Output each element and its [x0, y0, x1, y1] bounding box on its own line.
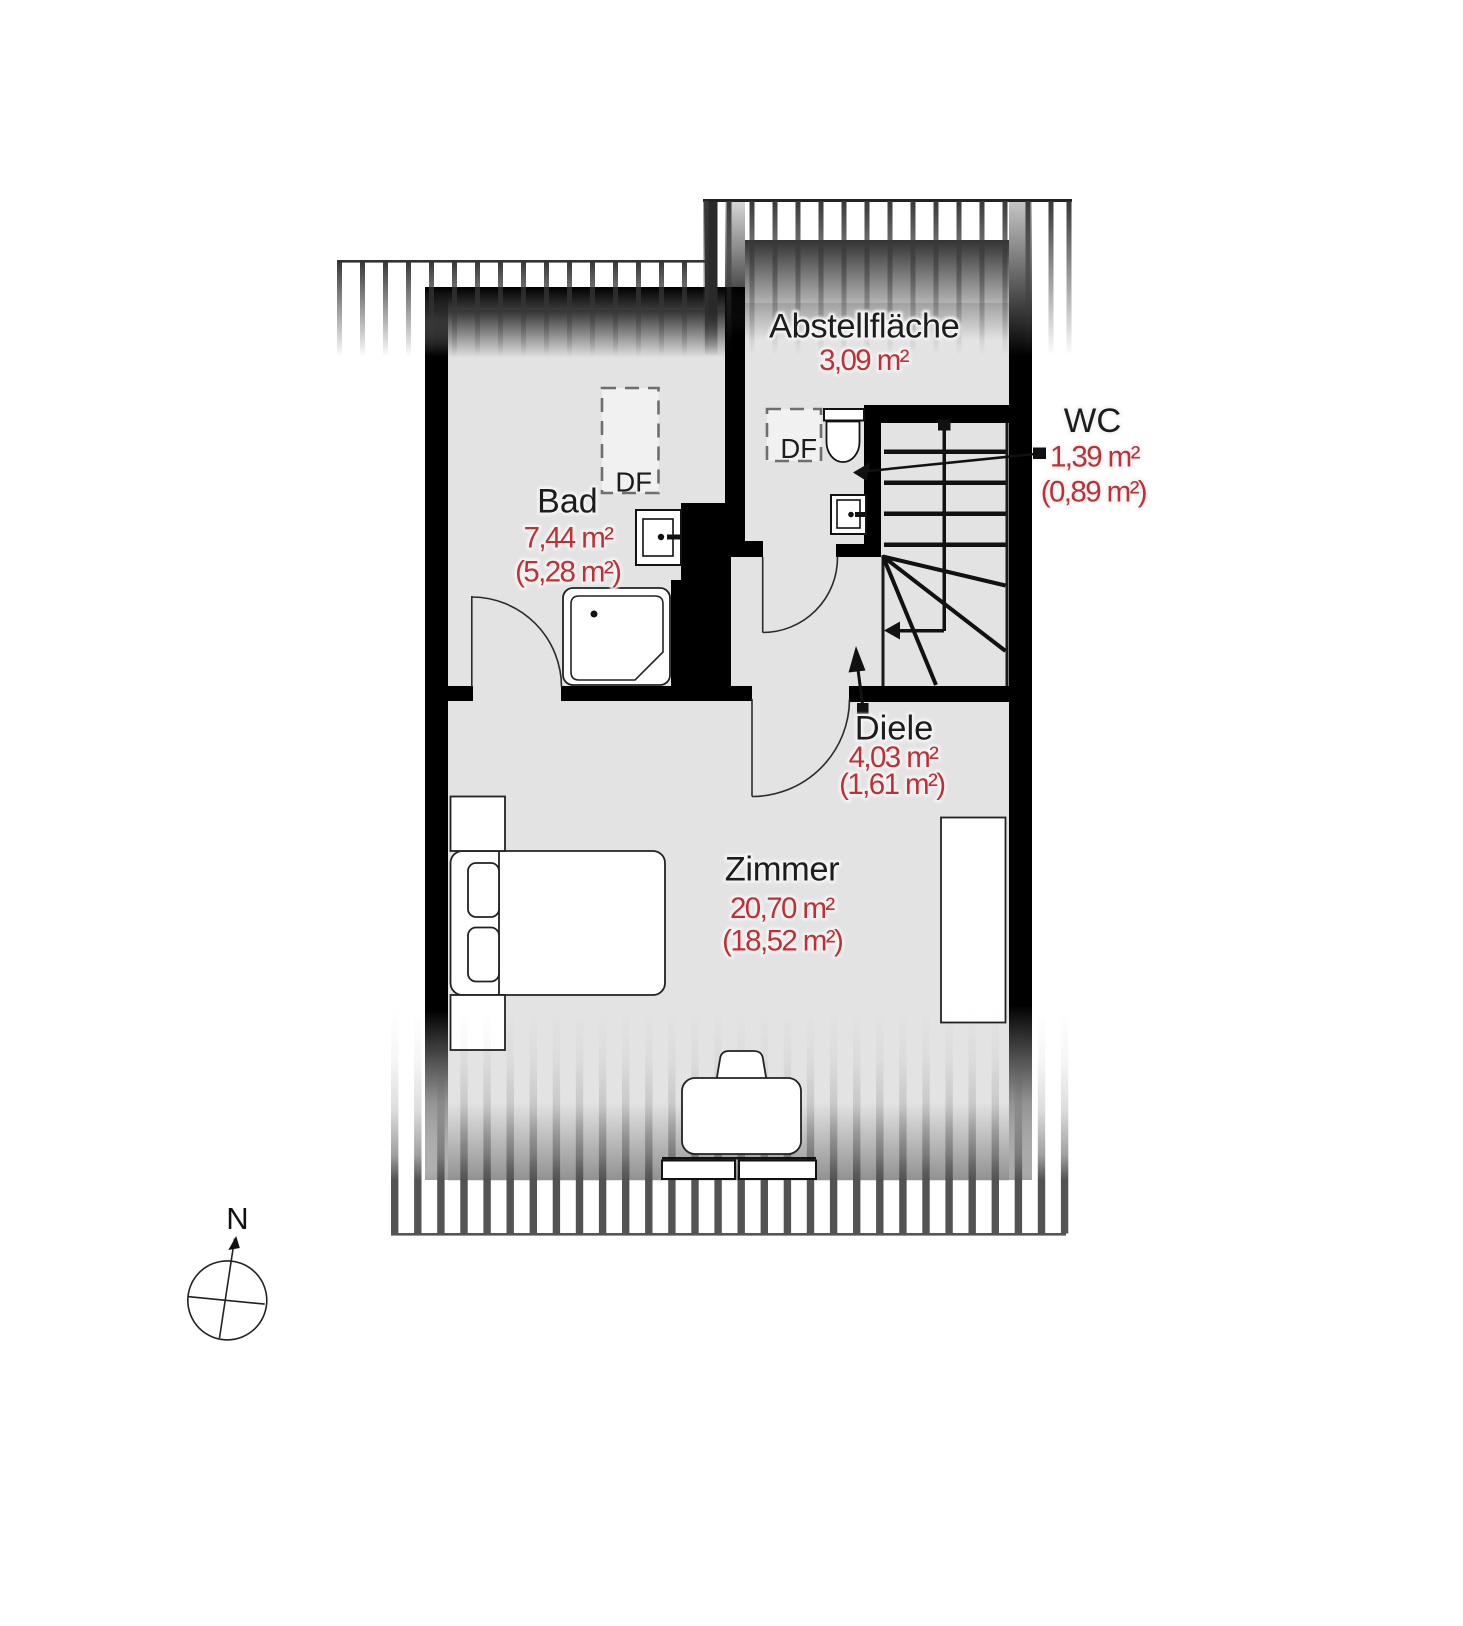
- svg-text:N: N: [226, 1201, 248, 1236]
- svg-text:1,39 m²: 1,39 m²: [1050, 440, 1141, 473]
- svg-text:(0,89 m²): (0,89 m²): [1041, 476, 1146, 509]
- svg-text:Abstellfläche: Abstellfläche: [769, 308, 959, 346]
- svg-text:Bad: Bad: [537, 483, 598, 521]
- svg-text:WC: WC: [1064, 402, 1121, 440]
- svg-text:(18,52 m²): (18,52 m²): [722, 925, 842, 958]
- svg-text:(5,28 m²): (5,28 m²): [515, 555, 620, 588]
- svg-text:3,09 m²: 3,09 m²: [819, 344, 910, 377]
- svg-text:(1,61 m²): (1,61 m²): [839, 768, 944, 801]
- svg-text:7,44 m²: 7,44 m²: [524, 522, 615, 555]
- svg-text:20,70 m²: 20,70 m²: [730, 892, 835, 925]
- svg-text:Zimmer: Zimmer: [725, 851, 840, 889]
- svg-text:DF: DF: [780, 433, 817, 464]
- svg-text:DF: DF: [615, 467, 652, 498]
